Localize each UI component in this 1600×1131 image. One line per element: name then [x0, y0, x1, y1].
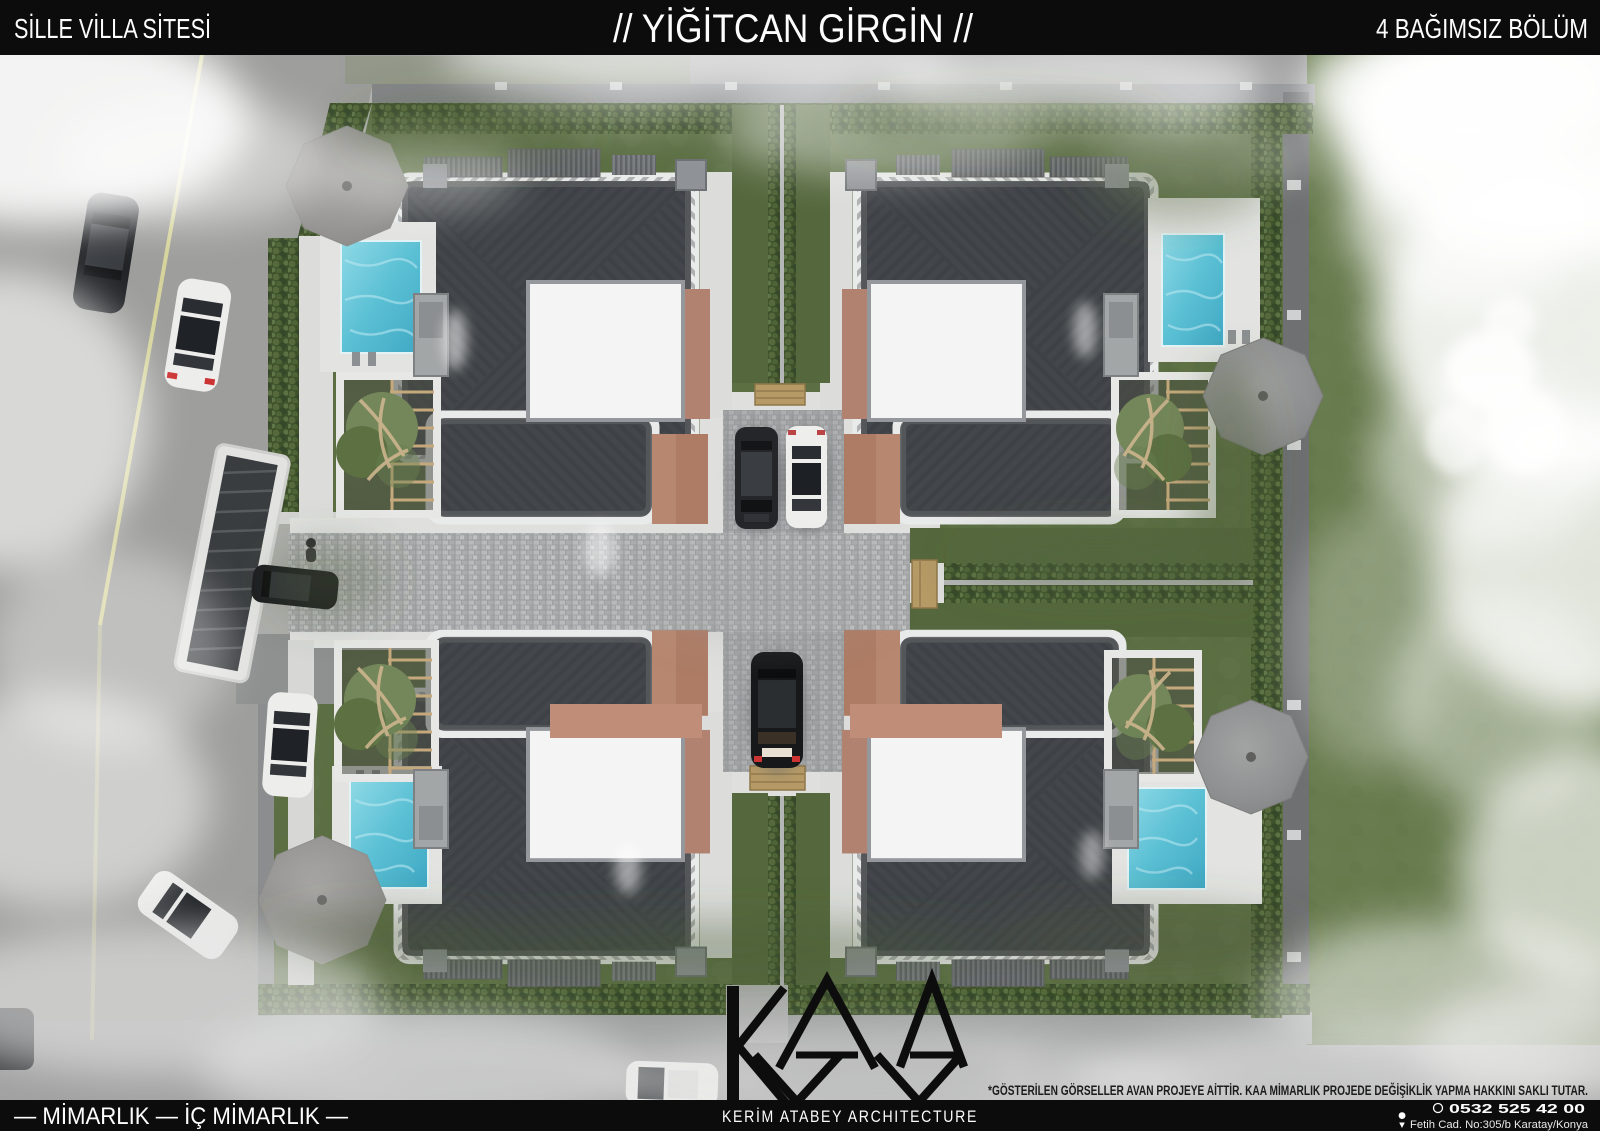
svg-text:*GÖSTERİLEN GÖRSELLER AVAN PRO: *GÖSTERİLEN GÖRSELLER AVAN PROJEYE AİTTİ…	[988, 1083, 1588, 1098]
svg-text:4 BAĞIMSIZ BÖLÜM: 4 BAĞIMSIZ BÖLÜM	[1376, 13, 1588, 44]
svg-text:— MİMARLIK — İÇ MİMARLIK —: — MİMARLIK — İÇ MİMARLIK —	[14, 1103, 348, 1130]
svg-text:Fetih Cad. No:305/b Karatay/Ko: Fetih Cad. No:305/b Karatay/Konya	[1410, 1119, 1589, 1131]
svg-text:KERİM ATABEY ARCHITECTURE: KERİM ATABEY ARCHITECTURE	[722, 1107, 978, 1126]
svg-text:// YİĞİTCAN GİRGİN //: // YİĞİTCAN GİRGİN //	[613, 6, 974, 51]
svg-text:SİLLE VİLLA SİTESİ: SİLLE VİLLA SİTESİ	[14, 13, 211, 44]
svg-text:0532 525 42 00: 0532 525 42 00	[1449, 1101, 1585, 1116]
